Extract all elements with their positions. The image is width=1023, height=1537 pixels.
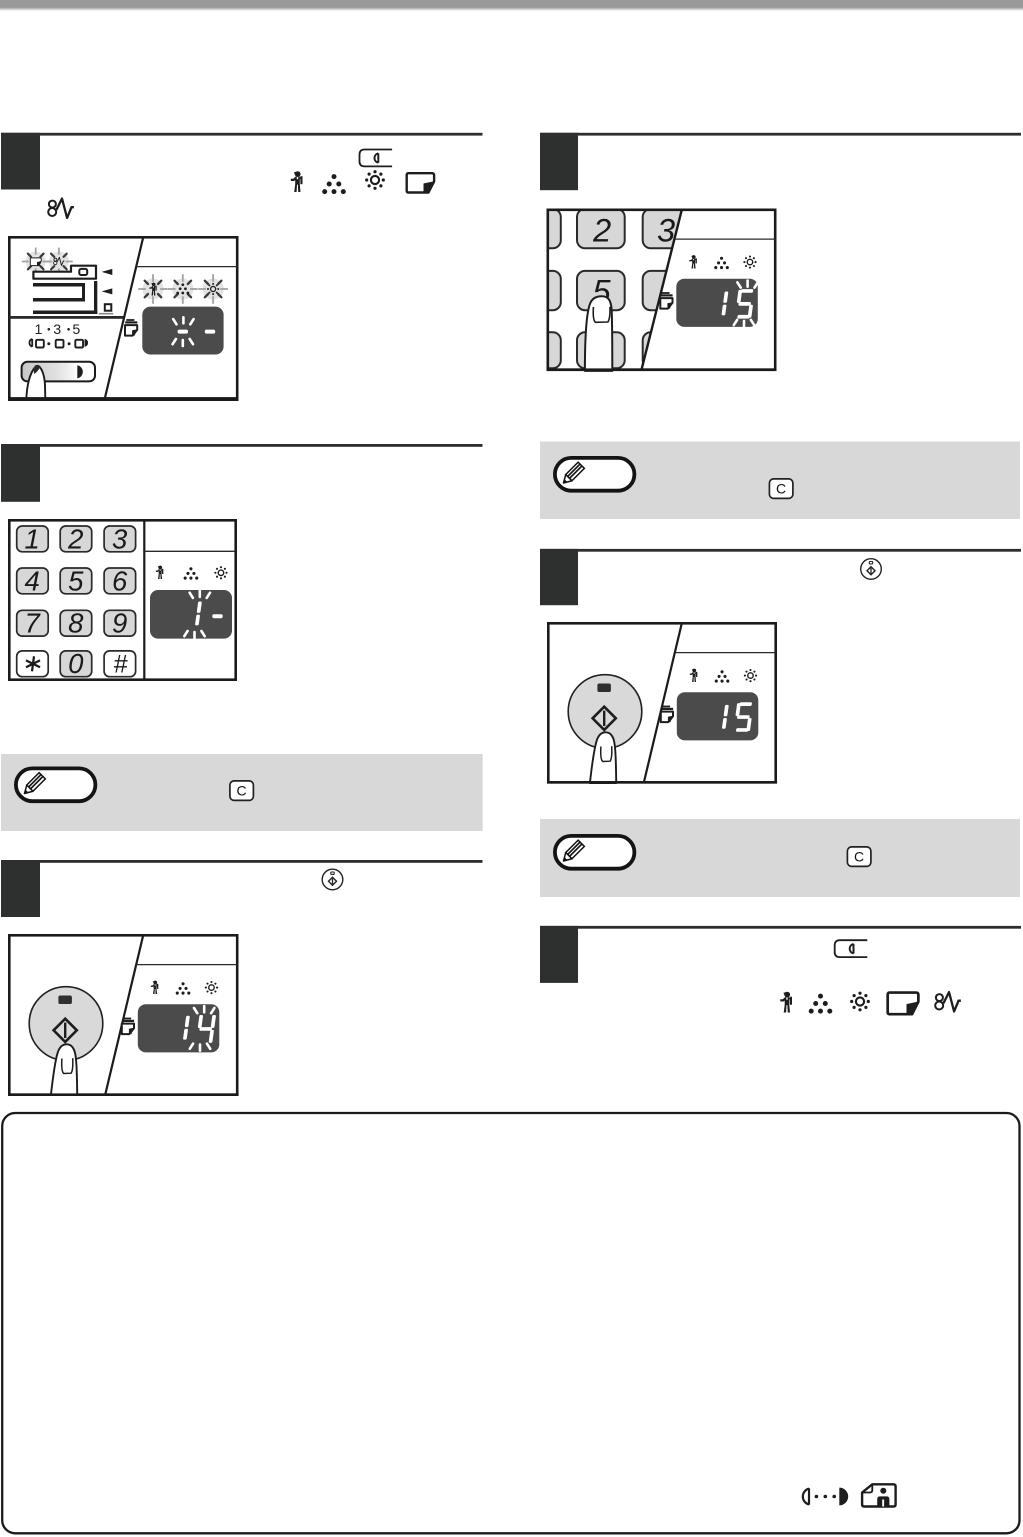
- svg-text:8: 8: [68, 608, 84, 639]
- svg-text:2: 2: [67, 523, 83, 554]
- svg-text:1: 1: [34, 322, 42, 338]
- svg-text:5: 5: [72, 322, 80, 338]
- svg-text:9: 9: [112, 608, 127, 639]
- svg-text:2: 2: [592, 213, 611, 249]
- svg-text:4: 4: [25, 565, 40, 596]
- svg-text:#: #: [113, 650, 128, 678]
- svg-text:3: 3: [53, 322, 61, 338]
- svg-text:5: 5: [68, 565, 84, 596]
- svg-text:0: 0: [68, 648, 84, 679]
- svg-text:1: 1: [25, 523, 40, 554]
- svg-text:6: 6: [112, 565, 128, 596]
- svg-text:3: 3: [112, 523, 128, 554]
- svg-text:7: 7: [25, 608, 42, 639]
